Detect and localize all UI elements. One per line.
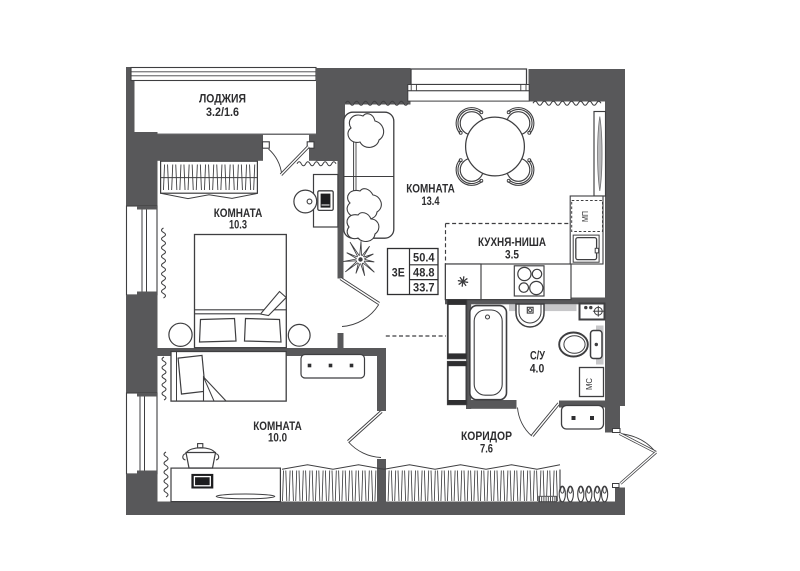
svg-text:50.4: 50.4: [413, 250, 435, 264]
svg-text:3.5: 3.5: [505, 248, 519, 262]
svg-text:48.8: 48.8: [413, 265, 435, 279]
svg-text:МС: МС: [584, 378, 594, 390]
svg-text:33.7: 33.7: [413, 280, 435, 294]
svg-text:4.0: 4.0: [530, 362, 545, 376]
svg-text:10.0: 10.0: [268, 431, 287, 445]
svg-text:ЛОДЖИЯ: ЛОДЖИЯ: [199, 92, 246, 106]
svg-text:3.2/1.6: 3.2/1.6: [206, 105, 239, 119]
svg-text:7.6: 7.6: [480, 442, 493, 456]
svg-text:10.3: 10.3: [229, 218, 247, 232]
svg-text:С/У: С/У: [530, 349, 545, 363]
svg-text:13.4: 13.4: [422, 194, 440, 208]
svg-text:3Е: 3Е: [392, 266, 405, 280]
svg-text:МП: МП: [580, 211, 590, 222]
